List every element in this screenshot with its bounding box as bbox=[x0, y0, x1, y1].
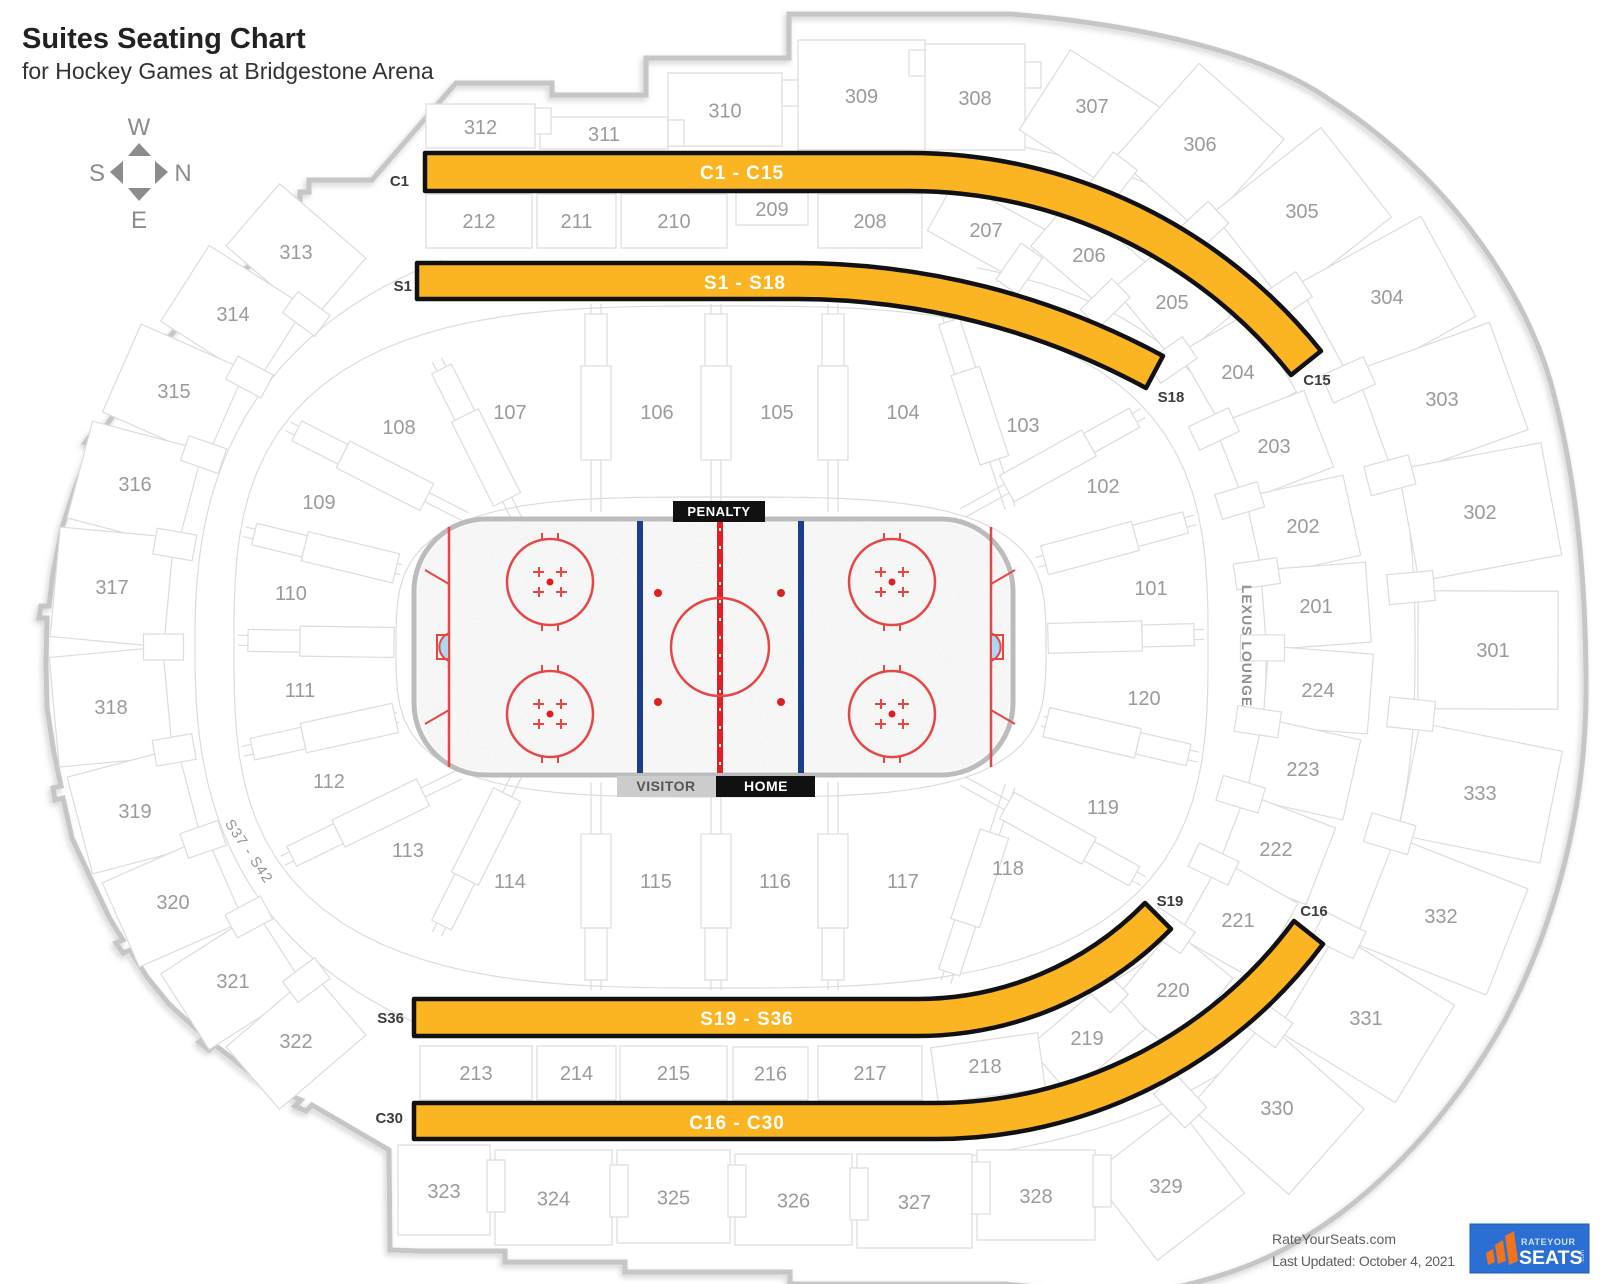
svg-text:216: 216 bbox=[754, 1064, 787, 1086]
svg-text:326: 326 bbox=[777, 1191, 810, 1213]
svg-text:SEATS: SEATS bbox=[1519, 1247, 1583, 1269]
svg-text:RateYourSeats.com: RateYourSeats.com bbox=[1272, 1231, 1396, 1247]
svg-text:111: 111 bbox=[285, 680, 315, 702]
svg-text:S19 - S36: S19 - S36 bbox=[700, 1009, 794, 1030]
svg-text:C30: C30 bbox=[375, 1110, 403, 1127]
svg-text:329: 329 bbox=[1149, 1176, 1182, 1198]
svg-text:309: 309 bbox=[845, 86, 878, 108]
svg-text:210: 210 bbox=[657, 211, 690, 233]
svg-text:S1: S1 bbox=[394, 278, 412, 295]
svg-text:308: 308 bbox=[958, 88, 991, 110]
svg-text:PENALTY: PENALTY bbox=[687, 504, 750, 519]
svg-text:318: 318 bbox=[94, 697, 127, 719]
svg-text:212: 212 bbox=[462, 211, 495, 233]
svg-text:120: 120 bbox=[1127, 688, 1160, 710]
svg-text:209: 209 bbox=[755, 199, 788, 221]
svg-text:202: 202 bbox=[1286, 516, 1319, 538]
svg-text:207: 207 bbox=[969, 220, 1002, 242]
svg-text:HOME: HOME bbox=[744, 778, 788, 794]
svg-text:317: 317 bbox=[95, 577, 128, 599]
svg-text:103: 103 bbox=[1006, 415, 1039, 437]
svg-text:219: 219 bbox=[1070, 1028, 1103, 1050]
svg-text:Last Updated: October 4, 2021: Last Updated: October 4, 2021 bbox=[1272, 1253, 1455, 1269]
svg-text:118: 118 bbox=[992, 858, 1024, 880]
svg-text:208: 208 bbox=[853, 211, 886, 233]
svg-text:325: 325 bbox=[657, 1188, 690, 1210]
svg-text:304: 304 bbox=[1370, 287, 1403, 309]
svg-text:215: 215 bbox=[657, 1063, 690, 1085]
svg-text:307: 307 bbox=[1075, 96, 1108, 118]
svg-text:323: 323 bbox=[427, 1181, 460, 1203]
svg-text:C1: C1 bbox=[390, 173, 409, 190]
svg-text:320: 320 bbox=[156, 892, 189, 914]
svg-text:119: 119 bbox=[1087, 797, 1119, 819]
svg-text:C1 - C15: C1 - C15 bbox=[700, 163, 784, 184]
svg-text:S: S bbox=[89, 160, 105, 187]
svg-text:104: 104 bbox=[886, 402, 919, 424]
svg-text:332: 332 bbox=[1424, 906, 1457, 928]
svg-text:for Hockey Games at Bridgeston: for Hockey Games at Bridgestone Arena bbox=[22, 58, 434, 84]
svg-text:C16 - C30: C16 - C30 bbox=[689, 1113, 785, 1134]
svg-text:110: 110 bbox=[275, 583, 307, 605]
svg-text:218: 218 bbox=[968, 1056, 1001, 1078]
svg-text:201: 201 bbox=[1299, 596, 1332, 618]
svg-text:330: 330 bbox=[1260, 1098, 1293, 1120]
svg-text:319: 319 bbox=[118, 801, 151, 823]
svg-text:204: 204 bbox=[1221, 362, 1254, 384]
svg-text:114: 114 bbox=[494, 871, 526, 893]
svg-text:206: 206 bbox=[1072, 245, 1105, 267]
svg-text:214: 214 bbox=[560, 1063, 593, 1085]
svg-text:303: 303 bbox=[1425, 389, 1458, 411]
svg-text:108: 108 bbox=[382, 417, 415, 439]
svg-text:224: 224 bbox=[1301, 680, 1334, 702]
svg-text:VISITOR: VISITOR bbox=[636, 778, 695, 794]
svg-text:324: 324 bbox=[537, 1189, 570, 1211]
svg-text:102: 102 bbox=[1086, 476, 1119, 498]
svg-text:C15: C15 bbox=[1303, 372, 1331, 389]
svg-text:E: E bbox=[131, 207, 147, 234]
svg-text:331: 331 bbox=[1349, 1008, 1382, 1030]
svg-text:314: 314 bbox=[216, 304, 249, 326]
svg-text:213: 213 bbox=[459, 1063, 492, 1085]
svg-text:315: 315 bbox=[157, 381, 190, 403]
svg-text:305: 305 bbox=[1285, 201, 1318, 223]
svg-text:203: 203 bbox=[1257, 436, 1290, 458]
svg-text:105: 105 bbox=[760, 402, 793, 424]
svg-text:S36: S36 bbox=[377, 1010, 404, 1027]
svg-text:Suites Seating Chart: Suites Seating Chart bbox=[22, 23, 306, 55]
svg-text:W: W bbox=[128, 114, 151, 141]
svg-text:RATEYOUR: RATEYOUR bbox=[1521, 1237, 1576, 1247]
svg-text:312: 312 bbox=[464, 117, 497, 139]
svg-text:301: 301 bbox=[1476, 640, 1509, 662]
svg-text:S1 - S18: S1 - S18 bbox=[704, 273, 786, 294]
svg-text:S18: S18 bbox=[1158, 389, 1185, 406]
svg-text:321: 321 bbox=[216, 971, 249, 993]
svg-text:327: 327 bbox=[898, 1192, 931, 1214]
svg-text:306: 306 bbox=[1183, 134, 1216, 156]
svg-text:311: 311 bbox=[588, 124, 620, 146]
svg-text:106: 106 bbox=[640, 402, 673, 424]
svg-text:310: 310 bbox=[708, 101, 741, 123]
svg-text:115: 115 bbox=[640, 871, 672, 893]
svg-text:217: 217 bbox=[853, 1063, 886, 1085]
svg-text:222: 222 bbox=[1259, 839, 1292, 861]
svg-text:109: 109 bbox=[302, 492, 335, 514]
svg-text:N: N bbox=[174, 160, 191, 187]
svg-text:116: 116 bbox=[759, 871, 791, 893]
svg-text:S19: S19 bbox=[1157, 893, 1184, 910]
svg-text:205: 205 bbox=[1155, 292, 1188, 314]
svg-text:316: 316 bbox=[118, 474, 151, 496]
svg-text:302: 302 bbox=[1463, 502, 1496, 524]
svg-text:221: 221 bbox=[1221, 910, 1254, 932]
svg-text:322: 322 bbox=[279, 1031, 312, 1053]
svg-text:.com: .com bbox=[1580, 1250, 1586, 1263]
svg-text:117: 117 bbox=[887, 871, 919, 893]
svg-text:220: 220 bbox=[1156, 980, 1189, 1002]
svg-text:107: 107 bbox=[493, 402, 526, 424]
svg-text:113: 113 bbox=[392, 840, 424, 862]
svg-text:328: 328 bbox=[1019, 1186, 1052, 1208]
svg-text:101: 101 bbox=[1134, 578, 1167, 600]
svg-text:223: 223 bbox=[1286, 759, 1319, 781]
svg-text:333: 333 bbox=[1463, 783, 1496, 805]
svg-text:313: 313 bbox=[279, 242, 312, 264]
svg-text:LEXUS LOUNGE: LEXUS LOUNGE bbox=[1239, 585, 1255, 707]
svg-text:C16: C16 bbox=[1300, 903, 1328, 920]
svg-text:112: 112 bbox=[313, 771, 345, 793]
svg-text:211: 211 bbox=[561, 211, 593, 233]
